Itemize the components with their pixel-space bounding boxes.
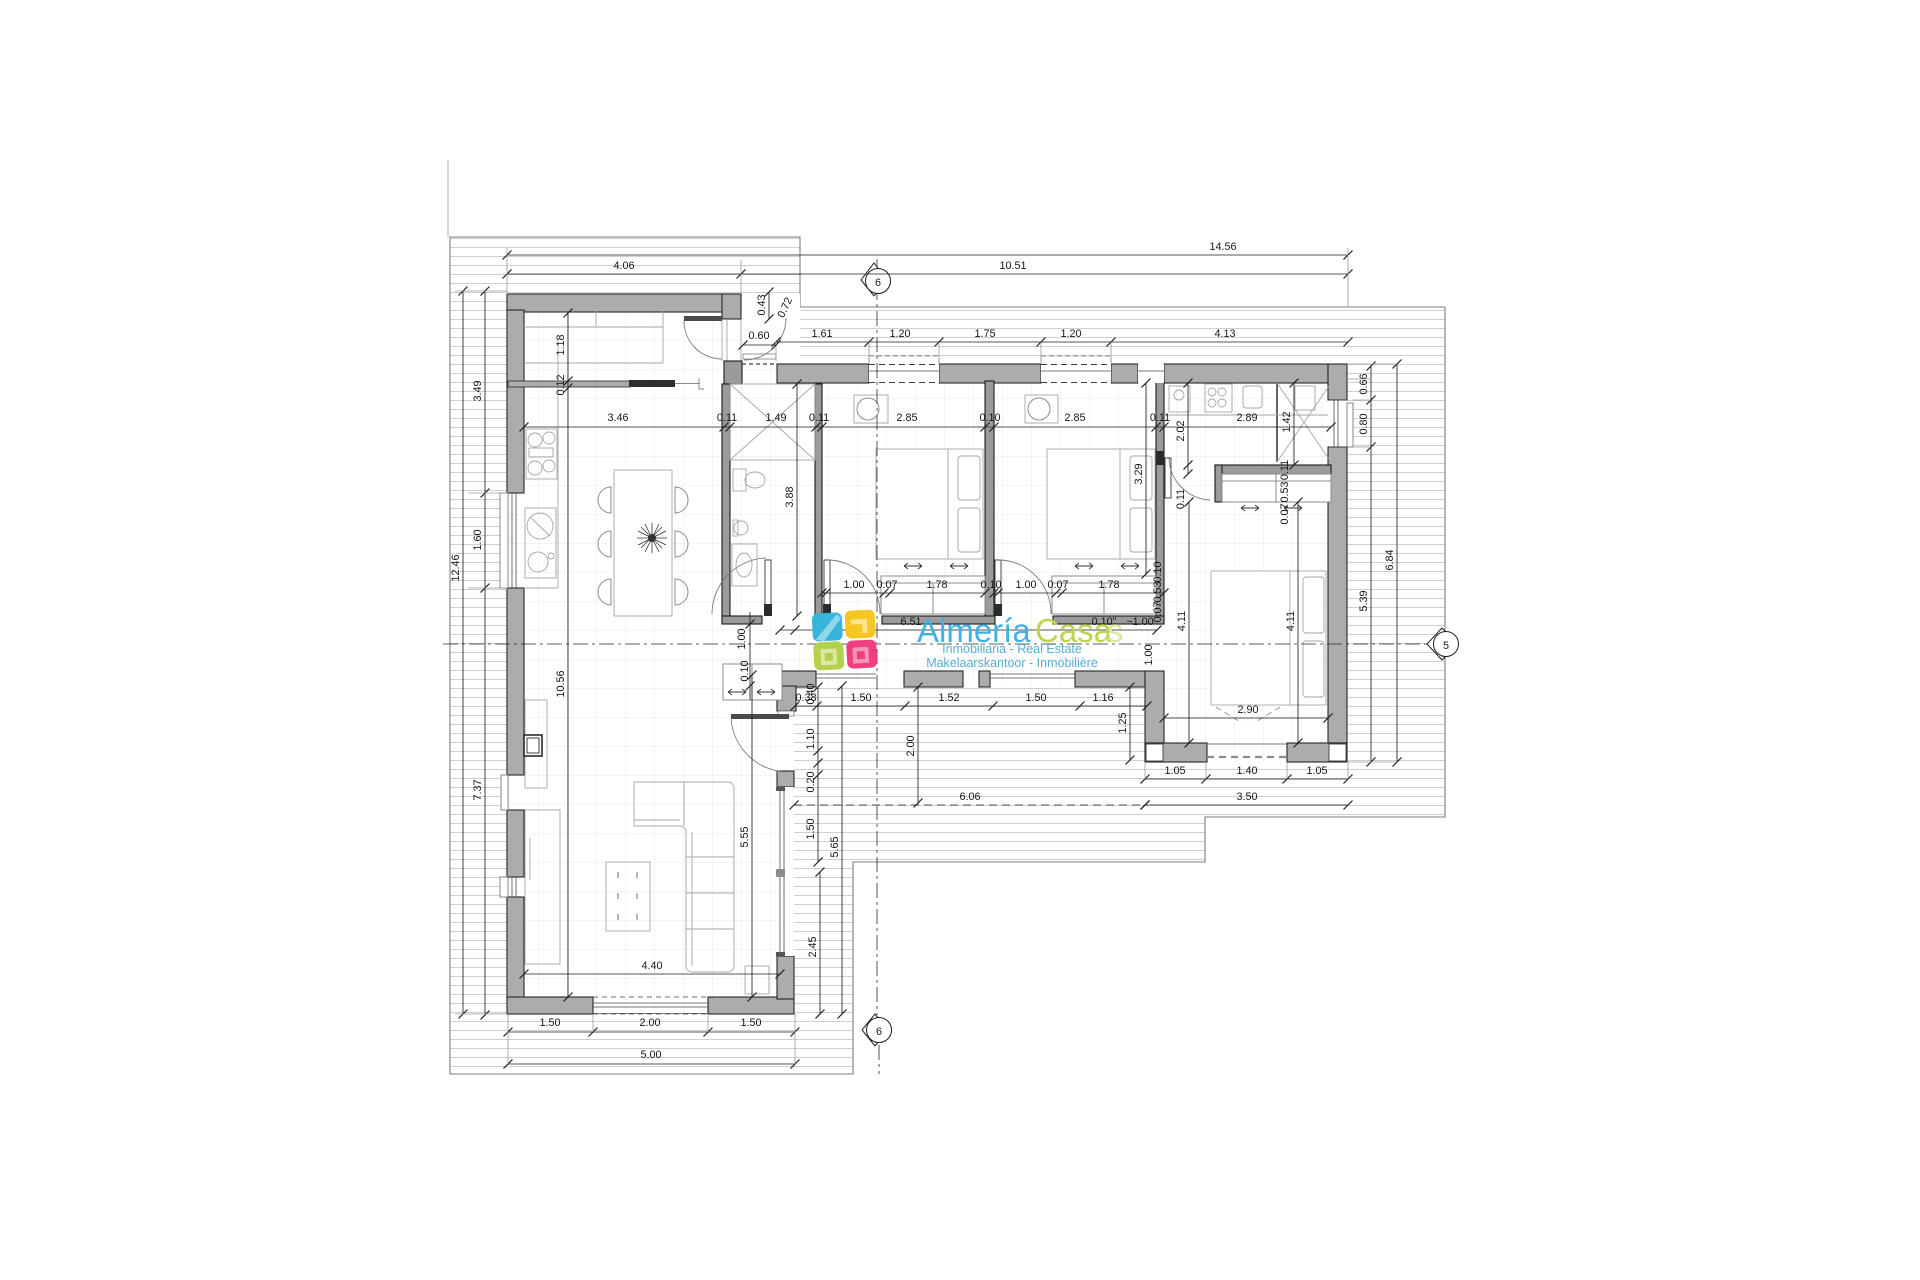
svg-text:5.39: 5.39 <box>1358 590 1370 611</box>
svg-text:0.60: 0.60 <box>748 330 769 342</box>
svg-text:1.18: 1.18 <box>555 334 567 355</box>
svg-text:0.07: 0.07 <box>1047 579 1068 591</box>
svg-text:10.56: 10.56 <box>555 670 567 697</box>
svg-text:5: 5 <box>1443 640 1449 652</box>
svg-text:14.56: 14.56 <box>1209 241 1236 253</box>
svg-text:0.53: 0.53 <box>1279 481 1291 502</box>
svg-text:1.25: 1.25 <box>1117 712 1129 733</box>
svg-text:0.10: 0.10 <box>980 579 1001 591</box>
svg-text:2.85: 2.85 <box>1064 412 1085 424</box>
svg-text:1.49: 1.49 <box>765 412 786 424</box>
svg-text:6.84: 6.84 <box>1384 549 1396 570</box>
svg-text:5.55: 5.55 <box>739 826 751 847</box>
svg-text:6: 6 <box>875 277 881 289</box>
svg-text:s: s <box>1107 612 1124 649</box>
svg-text:1.50: 1.50 <box>539 1017 560 1029</box>
svg-text:1.50: 1.50 <box>850 692 871 704</box>
svg-text:1.60: 1.60 <box>472 529 484 550</box>
svg-text:0.66: 0.66 <box>1358 373 1370 394</box>
svg-text:0.20: 0.20 <box>805 771 817 792</box>
svg-text:2.90: 2.90 <box>1237 704 1258 716</box>
svg-text:~1.00: ~1.00 <box>1126 616 1153 628</box>
svg-text:0.43: 0.43 <box>756 294 768 315</box>
svg-text:1.16: 1.16 <box>1092 692 1113 704</box>
svg-text:1.20: 1.20 <box>889 328 910 340</box>
svg-text:1.50: 1.50 <box>740 1017 761 1029</box>
svg-text:1.75: 1.75 <box>974 328 995 340</box>
svg-text:4.13: 4.13 <box>1214 328 1235 340</box>
svg-text:1.78: 1.78 <box>926 579 947 591</box>
svg-text:3.88: 3.88 <box>784 486 796 507</box>
svg-text:0.07: 0.07 <box>1279 503 1291 524</box>
svg-text:1.42: 1.42 <box>1281 411 1293 432</box>
svg-text:1.50: 1.50 <box>805 818 817 839</box>
svg-text:3.46: 3.46 <box>607 412 628 424</box>
svg-text:10.51: 10.51 <box>999 260 1026 272</box>
svg-text:1.52: 1.52 <box>938 692 959 704</box>
svg-text:3.49: 3.49 <box>472 380 484 401</box>
svg-text:1.05: 1.05 <box>1164 765 1185 777</box>
svg-text:1.61: 1.61 <box>811 328 832 340</box>
svg-text:2.00: 2.00 <box>905 735 917 756</box>
svg-text:3.29: 3.29 <box>1133 463 1145 484</box>
svg-text:0.11: 0.11 <box>717 412 737 424</box>
svg-text:0.53: 0.53 <box>1152 581 1164 602</box>
svg-text:0.10: 0.10 <box>979 412 1000 424</box>
svg-text:0.11: 0.11 <box>809 412 829 424</box>
svg-text:0.07: 0.07 <box>1152 601 1164 622</box>
svg-text:3.50: 3.50 <box>1236 791 1257 803</box>
svg-text:4.40: 4.40 <box>641 960 662 972</box>
svg-text:4.06: 4.06 <box>613 260 634 272</box>
svg-text:6.06: 6.06 <box>959 791 980 803</box>
svg-text:1.10: 1.10 <box>805 728 817 749</box>
svg-text:2.45: 2.45 <box>807 936 819 957</box>
svg-text:Inmobiliaria - Real Estate: Inmobiliaria - Real Estate <box>942 642 1082 656</box>
svg-text:1.78: 1.78 <box>1098 579 1119 591</box>
svg-text:4.11: 4.11 <box>1176 611 1188 631</box>
svg-text:1.20: 1.20 <box>1060 328 1081 340</box>
svg-text:0.12: 0.12 <box>555 374 567 395</box>
svg-text:0.40: 0.40 <box>805 683 817 704</box>
svg-text:5.00: 5.00 <box>640 1049 661 1061</box>
svg-text:1.40: 1.40 <box>1236 765 1257 777</box>
svg-text:6: 6 <box>876 1026 882 1038</box>
svg-text:5.65: 5.65 <box>829 836 841 857</box>
svg-text:1.00: 1.00 <box>736 628 748 649</box>
svg-text:1.00: 1.00 <box>843 579 864 591</box>
svg-text:0.80: 0.80 <box>1358 413 1370 434</box>
svg-text:0.07: 0.07 <box>876 579 897 591</box>
svg-text:Makelaarskantoor - Inmobilière: Makelaarskantoor - Inmobilière <box>926 656 1098 670</box>
svg-text:2.85: 2.85 <box>896 412 917 424</box>
svg-text:0.10: 0.10 <box>1152 561 1164 582</box>
svg-text:2.89: 2.89 <box>1236 412 1257 424</box>
svg-text:1.00: 1.00 <box>1143 644 1155 665</box>
svg-text:0.11: 0.11 <box>1150 412 1170 424</box>
svg-text:1.00: 1.00 <box>1015 579 1036 591</box>
svg-text:2.00: 2.00 <box>639 1017 660 1029</box>
svg-text:1.05: 1.05 <box>1306 765 1327 777</box>
svg-text:2.02: 2.02 <box>1175 420 1187 441</box>
svg-text:1.50: 1.50 <box>1025 692 1046 704</box>
svg-text:0.11: 0.11 <box>1279 460 1291 480</box>
svg-text:7.37: 7.37 <box>472 779 484 800</box>
svg-text:0.10: 0.10 <box>739 660 751 681</box>
svg-text:4.11: 4.11 <box>1285 611 1297 631</box>
svg-text:12.46: 12.46 <box>450 554 462 581</box>
